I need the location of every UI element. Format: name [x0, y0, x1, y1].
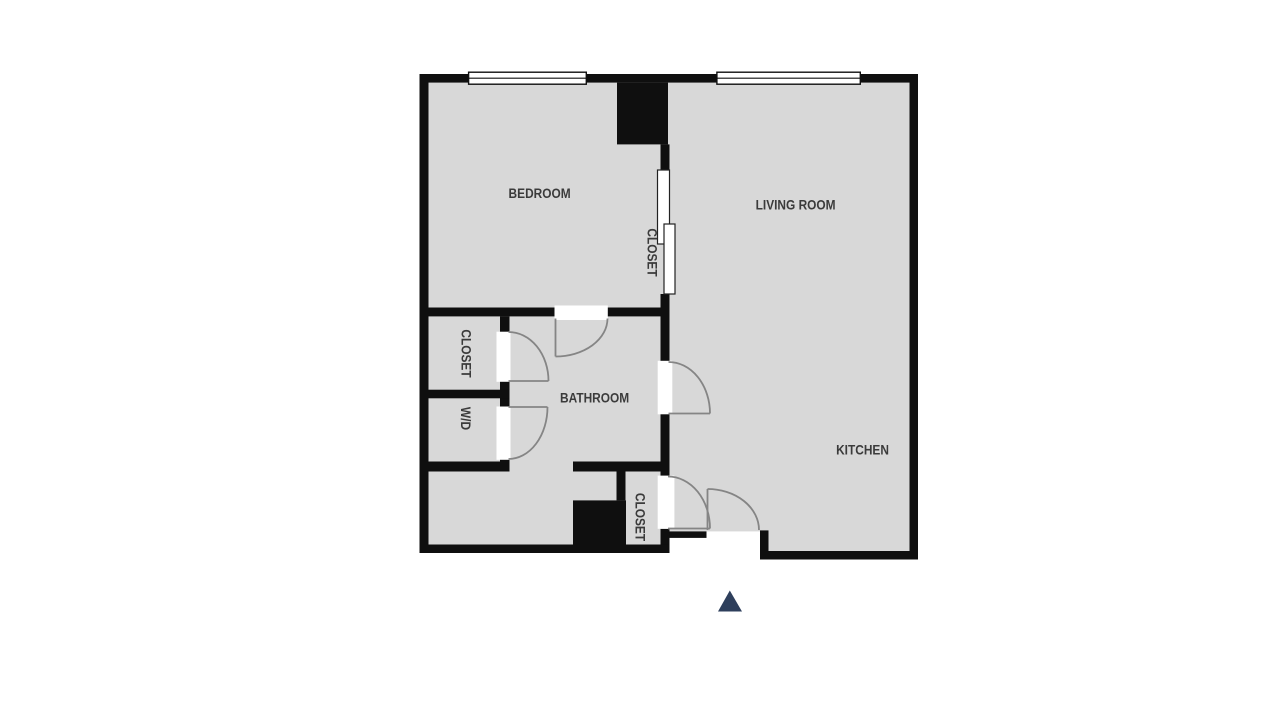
svg-text:LIVING ROOM: LIVING ROOM — [756, 196, 836, 212]
svg-text:CLOSET: CLOSET — [644, 228, 660, 276]
svg-text:KITCHEN: KITCHEN — [836, 442, 889, 458]
svg-text:CLOSET: CLOSET — [632, 493, 648, 541]
svg-text:BATHROOM: BATHROOM — [560, 390, 629, 406]
svg-text:CLOSET: CLOSET — [458, 329, 474, 377]
svg-text:BEDROOM: BEDROOM — [509, 185, 571, 201]
svg-text:W/D: W/D — [458, 407, 474, 430]
